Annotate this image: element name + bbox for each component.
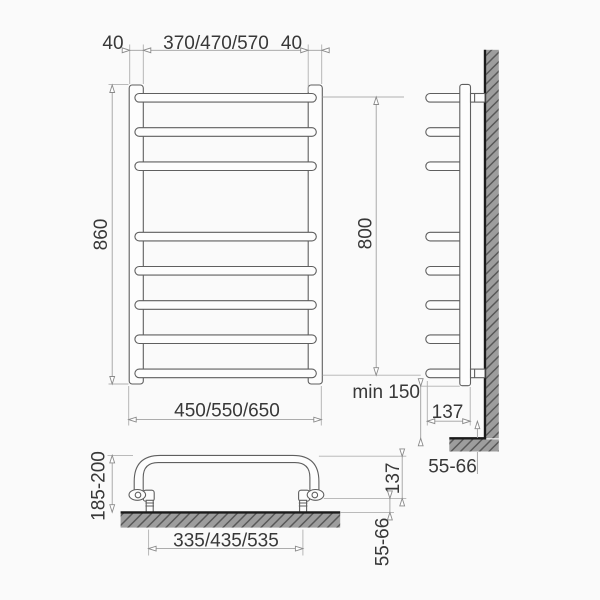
svg-text:450/550/650: 450/550/650: [174, 401, 280, 422]
svg-text:40: 40: [102, 33, 123, 54]
svg-text:137: 137: [432, 402, 464, 423]
svg-text:370/470/570: 370/470/570: [163, 33, 269, 54]
svg-text:185-200: 185-200: [89, 451, 110, 521]
svg-text:40: 40: [281, 33, 302, 54]
svg-text:55-66: 55-66: [373, 518, 394, 567]
svg-text:335/435/535: 335/435/535: [173, 530, 279, 551]
svg-text:55-66: 55-66: [428, 457, 477, 478]
svg-text:min 150: min 150: [352, 382, 420, 403]
svg-text:137: 137: [383, 463, 404, 495]
svg-text:860: 860: [91, 219, 112, 251]
svg-text:800: 800: [356, 218, 377, 250]
